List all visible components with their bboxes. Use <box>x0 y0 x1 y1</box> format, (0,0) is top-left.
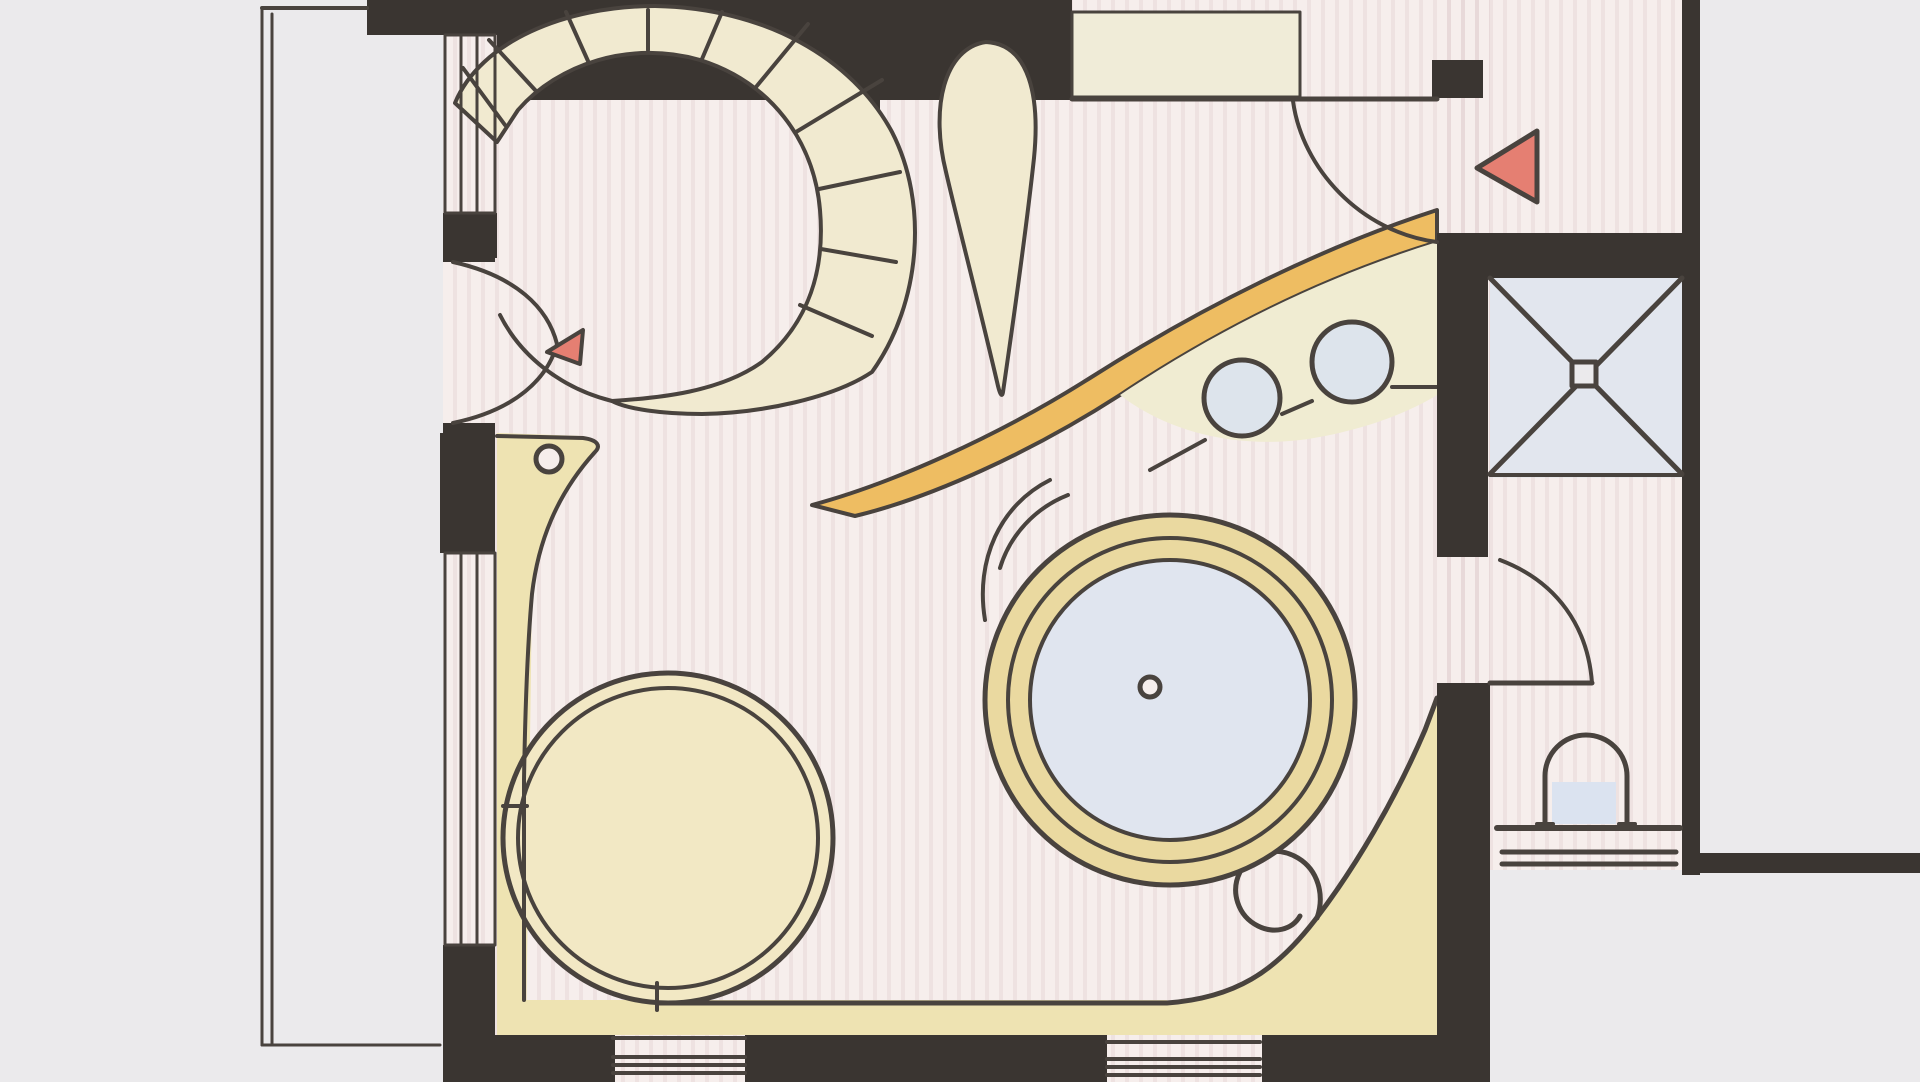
bottom-wall-mid <box>745 1035 1107 1082</box>
floor-plan-scan <box>0 0 1920 1082</box>
right-wall-lower <box>1437 683 1490 1082</box>
left-door-plate-bottom <box>443 423 495 433</box>
partition-post-ring <box>536 446 562 472</box>
outer-bottom-right-wall <box>1700 853 1920 873</box>
left-wall-block-upper <box>443 213 497 258</box>
niche-wash <box>1552 782 1616 824</box>
round-table-outline <box>503 673 833 1003</box>
top-left-wall-block <box>367 0 497 35</box>
floor-plan-drawing <box>0 0 1920 1082</box>
bottom-wall-left <box>443 1035 615 1082</box>
bar-stool-1 <box>1204 360 1280 436</box>
plan-layers <box>0 0 1920 1082</box>
bar-stool-2 <box>1312 322 1392 402</box>
wardrobe-counter <box>1072 12 1300 97</box>
left-door-plate-top <box>443 252 495 262</box>
outer-right-wall <box>1682 0 1700 875</box>
tub-drain-dot <box>1140 677 1160 697</box>
right-wall-stub-top <box>1432 60 1483 98</box>
spiral-tub-basin <box>1030 560 1310 840</box>
left-wall-block-mid <box>440 433 495 553</box>
lift-top-wall <box>1437 233 1697 278</box>
lift-left-wall <box>1437 278 1488 557</box>
lift-center-box <box>1572 362 1596 386</box>
